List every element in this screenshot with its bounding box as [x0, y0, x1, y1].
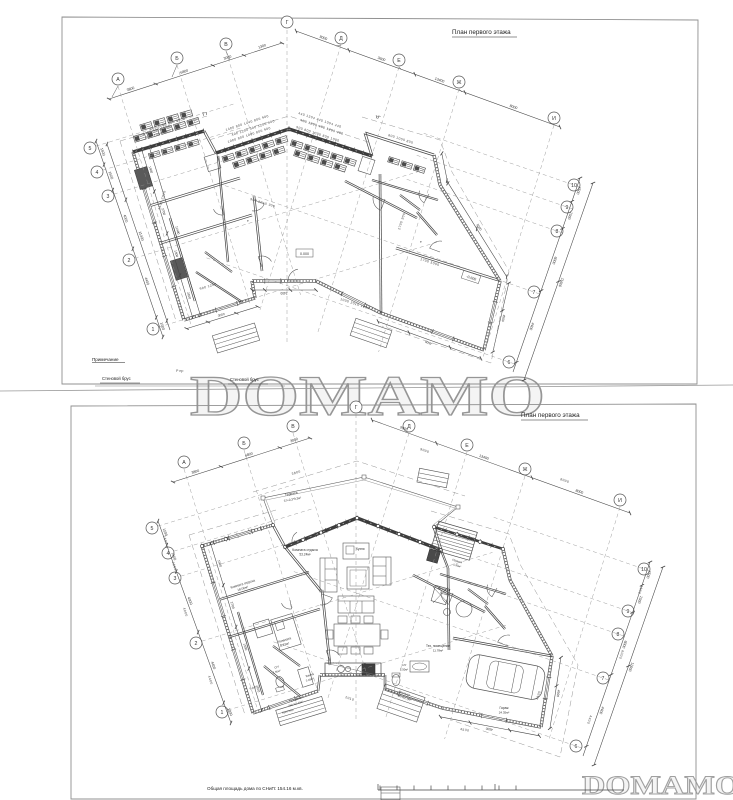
svg-text:9: 9 [566, 205, 569, 211]
svg-text:С/У: С/У [402, 663, 407, 667]
svg-text:3: 3 [107, 194, 110, 200]
svg-text:Стеновой брус: Стеновой брус [230, 377, 259, 382]
svg-text:т: т [420, 239, 422, 244]
svg-text:8: 8 [556, 229, 559, 235]
svg-text:В: В [291, 424, 295, 430]
svg-text:И: И [618, 498, 622, 504]
svg-text:Стеновой брус: Стеновой брус [102, 376, 131, 381]
svg-text:Д: Д [339, 36, 343, 42]
svg-text:т: т [247, 218, 249, 223]
svg-text:53.24м²: 53.24м² [299, 553, 310, 557]
svg-text:Г: Г [355, 405, 358, 411]
svg-text:7: 7 [533, 290, 536, 296]
svg-text:7: 7 [602, 676, 605, 682]
svg-text:10: 10 [641, 567, 647, 573]
svg-text:11.78м²: 11.78м² [433, 649, 443, 653]
svg-text:Кухня: Кухня [356, 547, 365, 551]
svg-text:6: 6 [508, 360, 511, 366]
svg-text:5: 5 [89, 146, 92, 152]
svg-text:2: 2 [195, 641, 198, 647]
svg-text:Примечание: Примечание [92, 357, 119, 362]
svg-text:DOMAMO: DOMAMO [190, 365, 545, 428]
svg-text:10: 10 [571, 183, 577, 189]
svg-text:Ж: Ж [523, 467, 528, 473]
svg-text:В: В [224, 42, 228, 48]
svg-text:А: А [116, 77, 120, 83]
svg-text:Комната отдыха: Комната отдыха [292, 548, 318, 552]
svg-text:1: 1 [152, 327, 155, 333]
svg-text:0.000: 0.000 [300, 252, 309, 256]
svg-text:Е: Е [397, 58, 401, 64]
svg-text:5: 5 [151, 526, 154, 532]
svg-text:1: 1 [221, 710, 224, 716]
svg-text:Б: Б [175, 56, 179, 62]
svg-text:Гараж: Гараж [500, 706, 510, 710]
svg-text:3: 3 [174, 576, 177, 582]
svg-text:Ж: Ж [457, 80, 462, 86]
svg-text:Р пр: Р пр [176, 369, 183, 373]
svg-text:2: 2 [128, 258, 131, 264]
svg-text:А: А [182, 460, 186, 466]
svg-text:24.35м²: 24.35м² [499, 711, 510, 715]
svg-text:2400: 2400 [280, 291, 287, 295]
svg-text:Г: Г [286, 20, 289, 26]
svg-text:План первого этажа: План первого этажа [521, 412, 580, 419]
svg-text:Е: Е [465, 443, 469, 449]
svg-text:8: 8 [617, 632, 620, 638]
svg-text:И: И [552, 116, 556, 122]
svg-text:Б: Б [242, 441, 246, 447]
svg-text:9: 9 [627, 609, 630, 615]
svg-text:4: 4 [96, 170, 99, 176]
svg-text:План первого этажа: План первого этажа [452, 29, 511, 36]
svg-text:DOMAMO: DOMAMO [582, 771, 733, 800]
svg-text:6: 6 [575, 744, 578, 750]
svg-text:2.50м²: 2.50м² [400, 668, 408, 672]
svg-text:Общая площадь дома по СНиП:: Общая площадь дома по СНиП: 154.16 м.кв. [207, 786, 303, 791]
